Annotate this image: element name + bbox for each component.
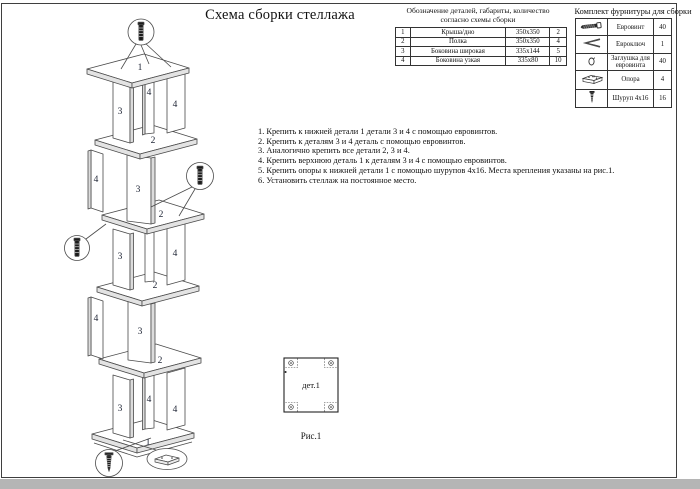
svg-text:1: 1 — [138, 63, 143, 73]
callout-screw-bottom — [96, 450, 123, 477]
shelf-assembly-diagram: 1 3 4 4 2 4 3 2 3 4 2 4 3 2 3 4 4 1 — [0, 0, 699, 486]
svg-text:4: 4 — [173, 100, 178, 110]
callout-euroscrew-top — [128, 19, 154, 45]
svg-text:2: 2 — [151, 136, 156, 146]
svg-text:3: 3 — [118, 252, 123, 262]
callout-support-foot — [147, 449, 187, 470]
panel-labels: 1 3 4 4 2 4 3 2 3 4 2 4 3 2 3 4 4 1 — [94, 63, 178, 448]
svg-text:4: 4 — [94, 314, 99, 324]
svg-text:2: 2 — [158, 356, 163, 366]
svg-text:4: 4 — [147, 88, 152, 98]
svg-text:4: 4 — [173, 249, 178, 259]
svg-text:1: 1 — [146, 438, 151, 448]
svg-text:3: 3 — [138, 327, 143, 337]
callout-euroscrew-left — [65, 236, 90, 261]
svg-text:4: 4 — [94, 175, 99, 185]
svg-text:2: 2 — [153, 281, 158, 291]
svg-text:4: 4 — [147, 395, 152, 405]
callout-euroscrew-right — [187, 163, 214, 190]
svg-text:3: 3 — [136, 185, 141, 195]
svg-text:3: 3 — [118, 107, 123, 117]
svg-text:2: 2 — [159, 210, 164, 220]
svg-text:3: 3 — [118, 404, 123, 414]
page-bottom-shadow — [0, 479, 700, 489]
svg-text:4: 4 — [173, 405, 178, 415]
